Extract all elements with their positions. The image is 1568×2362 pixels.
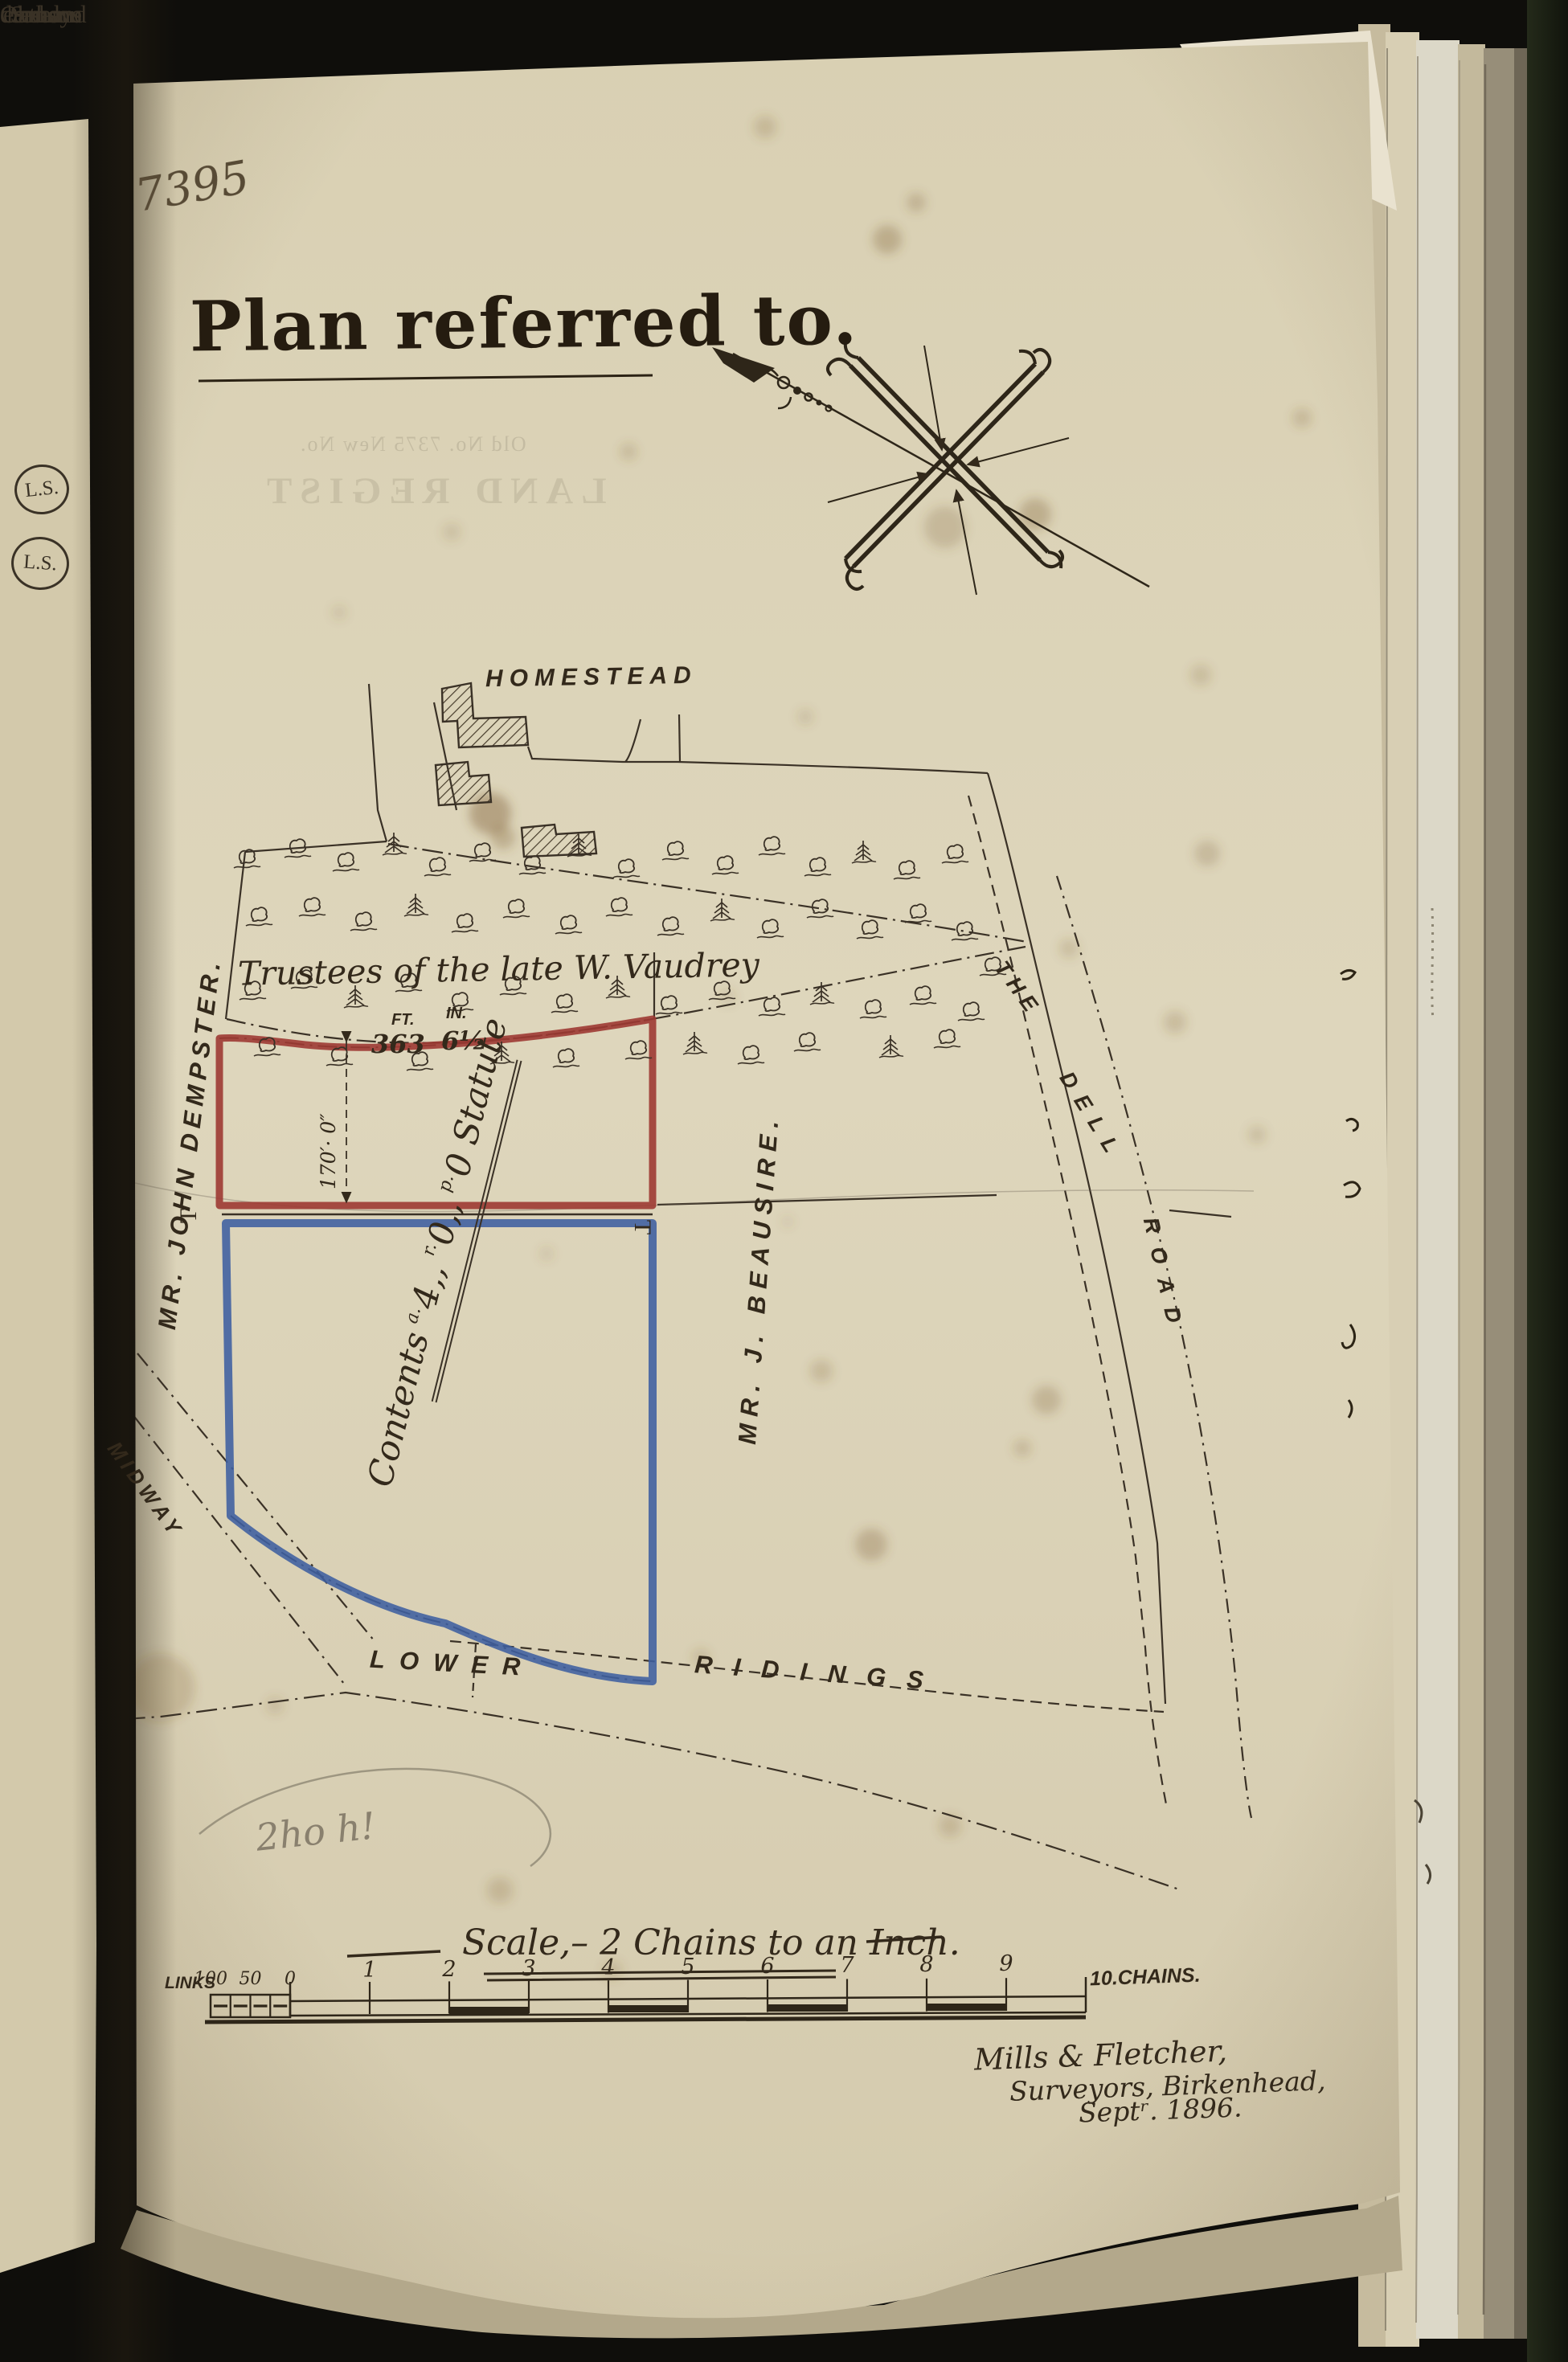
foxing-spot	[1059, 939, 1079, 958]
survey-date: Septʳ. 1896.	[1078, 2091, 1243, 2128]
foxing-spot	[719, 989, 735, 1005]
foxing-spot	[1190, 665, 1211, 686]
show-through-line: Old No. 7375 New No.	[299, 432, 526, 456]
foxing-spot	[1013, 1439, 1031, 1457]
scale-links-number: 50	[233, 1969, 268, 1989]
in-value: 6½	[441, 1025, 486, 1056]
show-through-line: LAND REGIST	[259, 469, 607, 513]
perches-sup: p.	[435, 1173, 458, 1194]
scale-chain-number: 4	[591, 1955, 626, 1980]
gutter-shadow	[72, 0, 177, 2362]
scale-chain-number: 7	[829, 1953, 865, 1978]
scale-chain-number: 2	[432, 1957, 467, 1982]
foxing-spot	[1164, 1011, 1186, 1034]
scale-chain-number: 8	[909, 1952, 944, 1977]
foxing-spot	[1032, 1386, 1061, 1414]
foxing-spot	[810, 1360, 833, 1382]
foxing-spot	[332, 605, 346, 620]
height-dimension-label: 170′· 0″	[317, 1113, 340, 1189]
foxing-spot	[907, 193, 926, 212]
boundary-t-mark: T	[628, 1220, 656, 1234]
scale-links-number: 0	[272, 1969, 308, 1989]
foxing-spot	[873, 225, 902, 254]
scale-chain-number: 6	[750, 1954, 785, 1979]
acres-sup: a.	[402, 1305, 425, 1326]
foxing-spot	[855, 1529, 887, 1561]
homestead-label: HOMESTEAD	[485, 662, 698, 694]
foxing-spot	[487, 1877, 513, 1903]
foxing-spot	[1292, 408, 1312, 428]
foxing-spot	[127, 1654, 194, 1721]
scale-chain-number: 3	[511, 1956, 547, 1981]
foxing-spot	[781, 1215, 794, 1228]
scale-links-number: 100	[193, 1969, 228, 1989]
chains-end-label: 10.CHAINS.	[1090, 1964, 1201, 1992]
scale-chain-number: 9	[989, 1951, 1024, 1976]
foxing-spot	[620, 443, 637, 461]
scale-chain-number: 1	[352, 1958, 387, 1983]
foxing-spot	[443, 523, 461, 541]
scale-chain-number: 5	[670, 1955, 706, 1979]
ft-unit-label: FT.	[391, 1011, 415, 1030]
foxing-spot	[491, 825, 515, 849]
in-unit-label: IN.	[446, 1005, 467, 1023]
ft-value: 363	[371, 1029, 425, 1059]
foxing-spot	[754, 116, 776, 138]
foxing-spot	[924, 506, 966, 548]
page-title: Plan referred to.	[189, 280, 858, 368]
foxing-spot	[539, 1246, 554, 1261]
scanned-plan-page: h non- e same Sandys e me on dred and Oa…	[0, 0, 1568, 2362]
boundary-t-mark: T	[175, 1209, 203, 1223]
foxing-spot	[1194, 841, 1220, 866]
foxing-spot	[797, 709, 813, 725]
foxing-spot	[266, 1697, 284, 1714]
foxing-spot	[1248, 1126, 1266, 1144]
left-page-fragment: Oaths.	[0, 0, 64, 29]
